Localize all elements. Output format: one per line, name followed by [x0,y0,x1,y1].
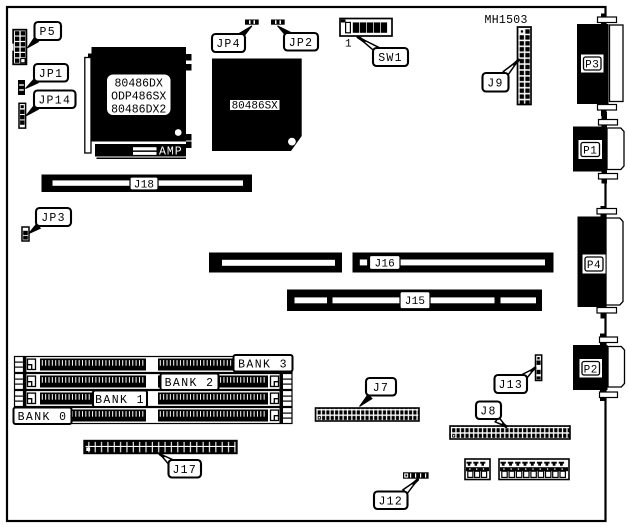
svg-text:P4: P4 [587,260,601,272]
svg-text:MH1503: MH1503 [485,14,528,27]
svg-text:AMP: AMP [159,146,183,159]
svg-text:P5: P5 [40,26,56,39]
svg-text:JP2: JP2 [289,37,314,50]
svg-text:J15: J15 [405,296,425,308]
svg-text:J16: J16 [375,259,395,271]
svg-text:J12: J12 [378,495,403,508]
svg-text:BANK 2: BANK 2 [165,377,215,390]
svg-text:J7: J7 [373,382,389,395]
svg-text:JP4: JP4 [216,38,241,51]
svg-text:J13: J13 [498,379,523,392]
svg-text:ODP486SX: ODP486SX [111,91,166,104]
svg-text:P3: P3 [585,60,599,72]
svg-text:P1: P1 [583,146,597,158]
svg-text:J9: J9 [487,77,503,90]
svg-text:SW1: SW1 [378,52,403,65]
svg-text:80486SX: 80486SX [232,101,279,113]
svg-text:1: 1 [345,39,352,51]
svg-text:JP1: JP1 [39,68,64,81]
svg-text:JP3: JP3 [41,212,66,225]
svg-text:P2: P2 [584,364,598,376]
svg-text:J18: J18 [134,180,154,192]
svg-text:80486DX2: 80486DX2 [111,104,166,117]
svg-text:JP14: JP14 [38,94,71,107]
svg-text:BANK 1: BANK 1 [95,394,145,407]
svg-text:J8: J8 [480,405,496,418]
svg-text:BANK 3: BANK 3 [238,358,288,371]
svg-text:80486DX: 80486DX [115,78,163,91]
svg-text:J17: J17 [172,464,197,477]
svg-text:BANK 0: BANK 0 [18,411,68,424]
